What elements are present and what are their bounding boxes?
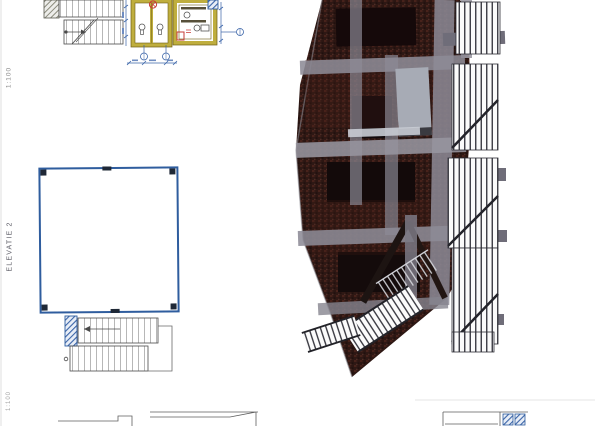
fire-escape-railing	[452, 332, 494, 352]
corner-column	[169, 168, 175, 174]
fixture-symbol	[184, 12, 190, 18]
window-hatch	[208, 0, 218, 9]
facade-panel	[395, 67, 432, 137]
fire-escape-railing	[452, 248, 498, 344]
scanned-drawing-sheet: 1:100 ELEVATIE 2 1:100	[0, 0, 600, 426]
sheet-bottom-fragments	[58, 400, 595, 426]
toilet-symbol	[157, 24, 163, 30]
corner-column	[40, 170, 46, 176]
dim-text-blur	[122, 28, 124, 34]
hatch-column	[65, 316, 77, 346]
stair-treads-upper	[59, 0, 123, 17]
stair-plan-bottom	[64, 316, 172, 371]
dim-text-blur	[122, 12, 124, 18]
fragment-elevation-left	[58, 416, 132, 426]
concrete-column	[350, 0, 362, 205]
stair-treads-lower	[70, 346, 148, 371]
wall-hatch-block	[44, 0, 59, 18]
sanitary-plan	[127, 0, 244, 65]
dim-text-blur	[149, 60, 156, 62]
dim-text-blur	[167, 60, 173, 62]
fragment-elevation-middle	[150, 412, 258, 426]
counter-fixture	[181, 7, 206, 10]
edge-column-bottom	[111, 309, 120, 313]
fire-escape-railing	[456, 2, 500, 54]
building-rendering	[296, 0, 507, 377]
window-opening	[327, 162, 415, 202]
roof-plan-outline	[39, 167, 178, 312]
corner-column	[42, 305, 48, 311]
corner-column	[171, 303, 177, 309]
toilet-symbol	[139, 24, 145, 30]
stair-plan-top	[44, 0, 128, 46]
roof-plan	[39, 166, 178, 314]
drawing-canvas	[0, 0, 600, 426]
edge-column-top	[102, 166, 111, 170]
fixture-symbol	[194, 25, 200, 31]
toilet-tank	[159, 30, 162, 35]
stair-start-circle	[64, 357, 68, 361]
window-hatch	[515, 414, 525, 425]
dim-text-blur	[132, 60, 138, 62]
sink-box	[201, 25, 209, 31]
counter-fixture	[181, 20, 206, 23]
window-hatch	[503, 414, 513, 425]
window-opening	[336, 7, 417, 46]
toilet-tank	[141, 30, 144, 35]
